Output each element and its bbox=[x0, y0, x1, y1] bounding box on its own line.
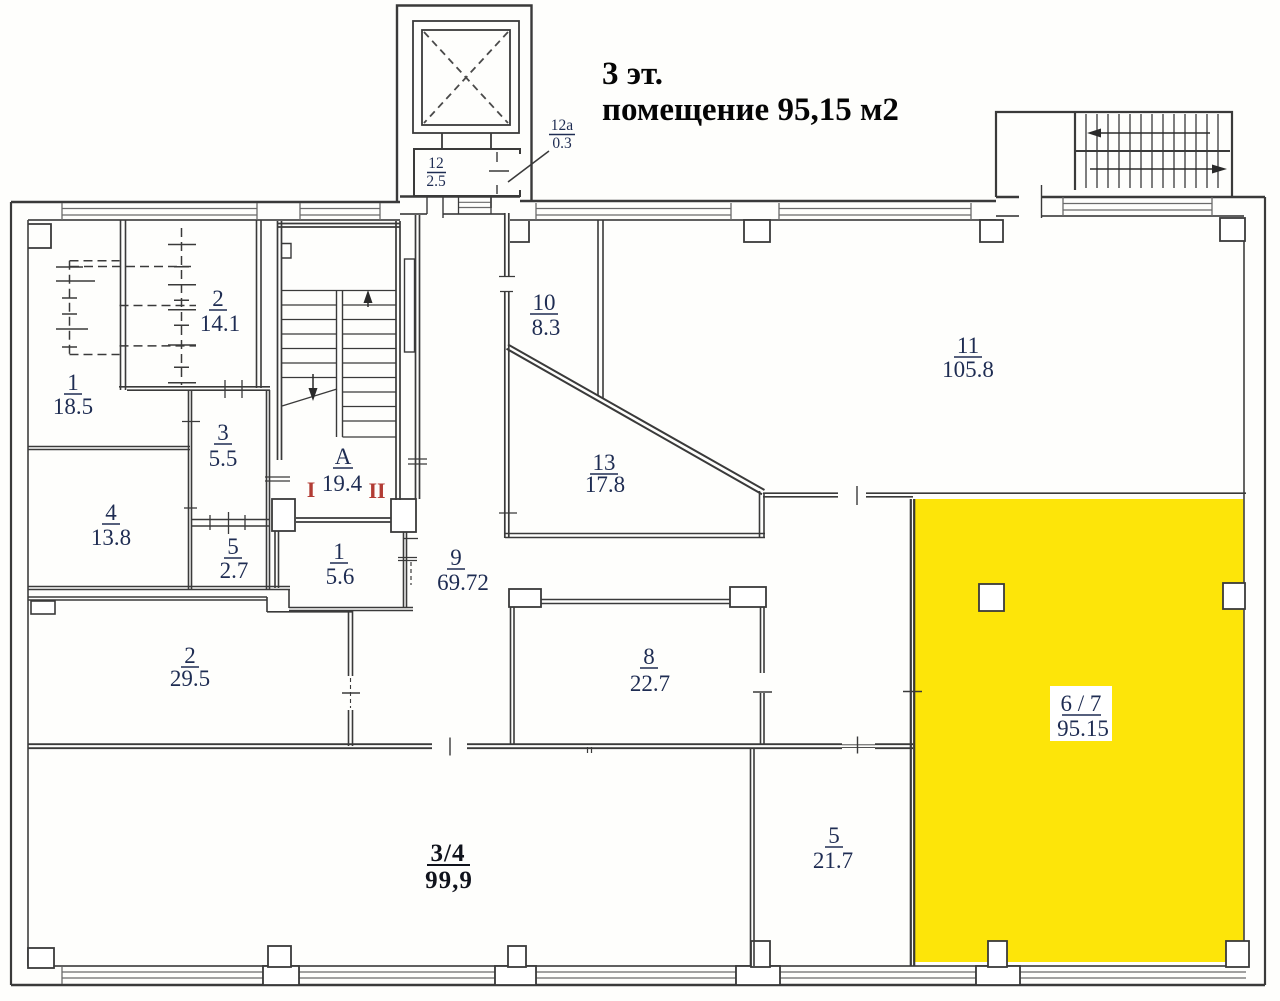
svg-text:17.8: 17.8 bbox=[585, 472, 625, 497]
svg-text:3: 3 bbox=[217, 420, 229, 445]
svg-text:А: А bbox=[335, 444, 352, 469]
svg-text:0.3: 0.3 bbox=[552, 135, 572, 152]
svg-text:99,9: 99,9 bbox=[425, 867, 473, 894]
svg-text:5: 5 bbox=[828, 823, 840, 848]
svg-text:5.6: 5.6 bbox=[326, 564, 355, 589]
svg-text:12a: 12a bbox=[551, 117, 574, 134]
svg-text:8.3: 8.3 bbox=[532, 315, 561, 340]
svg-text:12: 12 bbox=[428, 155, 444, 172]
svg-text:11: 11 bbox=[957, 333, 979, 358]
svg-text:14.1: 14.1 bbox=[200, 311, 240, 336]
svg-text:2: 2 bbox=[184, 643, 196, 668]
svg-text:помещение 95,15 м2: помещение 95,15 м2 bbox=[602, 92, 899, 128]
svg-text:9: 9 bbox=[450, 545, 462, 570]
svg-text:II: II bbox=[368, 478, 385, 503]
svg-text:3/4: 3/4 bbox=[431, 840, 466, 867]
svg-text:19.4: 19.4 bbox=[322, 471, 363, 496]
svg-text:5: 5 bbox=[227, 534, 239, 559]
svg-text:4: 4 bbox=[105, 500, 117, 525]
svg-text:5.5: 5.5 bbox=[209, 446, 238, 471]
svg-text:2.7: 2.7 bbox=[220, 558, 249, 583]
svg-text:21.7: 21.7 bbox=[813, 848, 853, 873]
svg-text:69.72: 69.72 bbox=[437, 570, 489, 595]
svg-text:29.5: 29.5 bbox=[170, 666, 210, 691]
svg-text:I: I bbox=[307, 477, 316, 502]
svg-text:10: 10 bbox=[533, 290, 556, 315]
svg-text:6 / 7: 6 / 7 bbox=[1061, 691, 1102, 716]
svg-text:8: 8 bbox=[643, 644, 655, 669]
svg-text:95.15: 95.15 bbox=[1057, 716, 1109, 741]
svg-text:13.8: 13.8 bbox=[91, 525, 131, 550]
svg-text:3 эт.: 3 эт. bbox=[602, 56, 663, 92]
svg-text:1: 1 bbox=[333, 539, 345, 564]
svg-text:105.8: 105.8 bbox=[942, 357, 994, 382]
svg-text:1: 1 bbox=[67, 370, 79, 395]
svg-text:18.5: 18.5 bbox=[53, 394, 93, 419]
svg-text:2.5: 2.5 bbox=[426, 173, 446, 190]
svg-text:2: 2 bbox=[212, 286, 224, 311]
svg-text:22.7: 22.7 bbox=[630, 671, 670, 696]
